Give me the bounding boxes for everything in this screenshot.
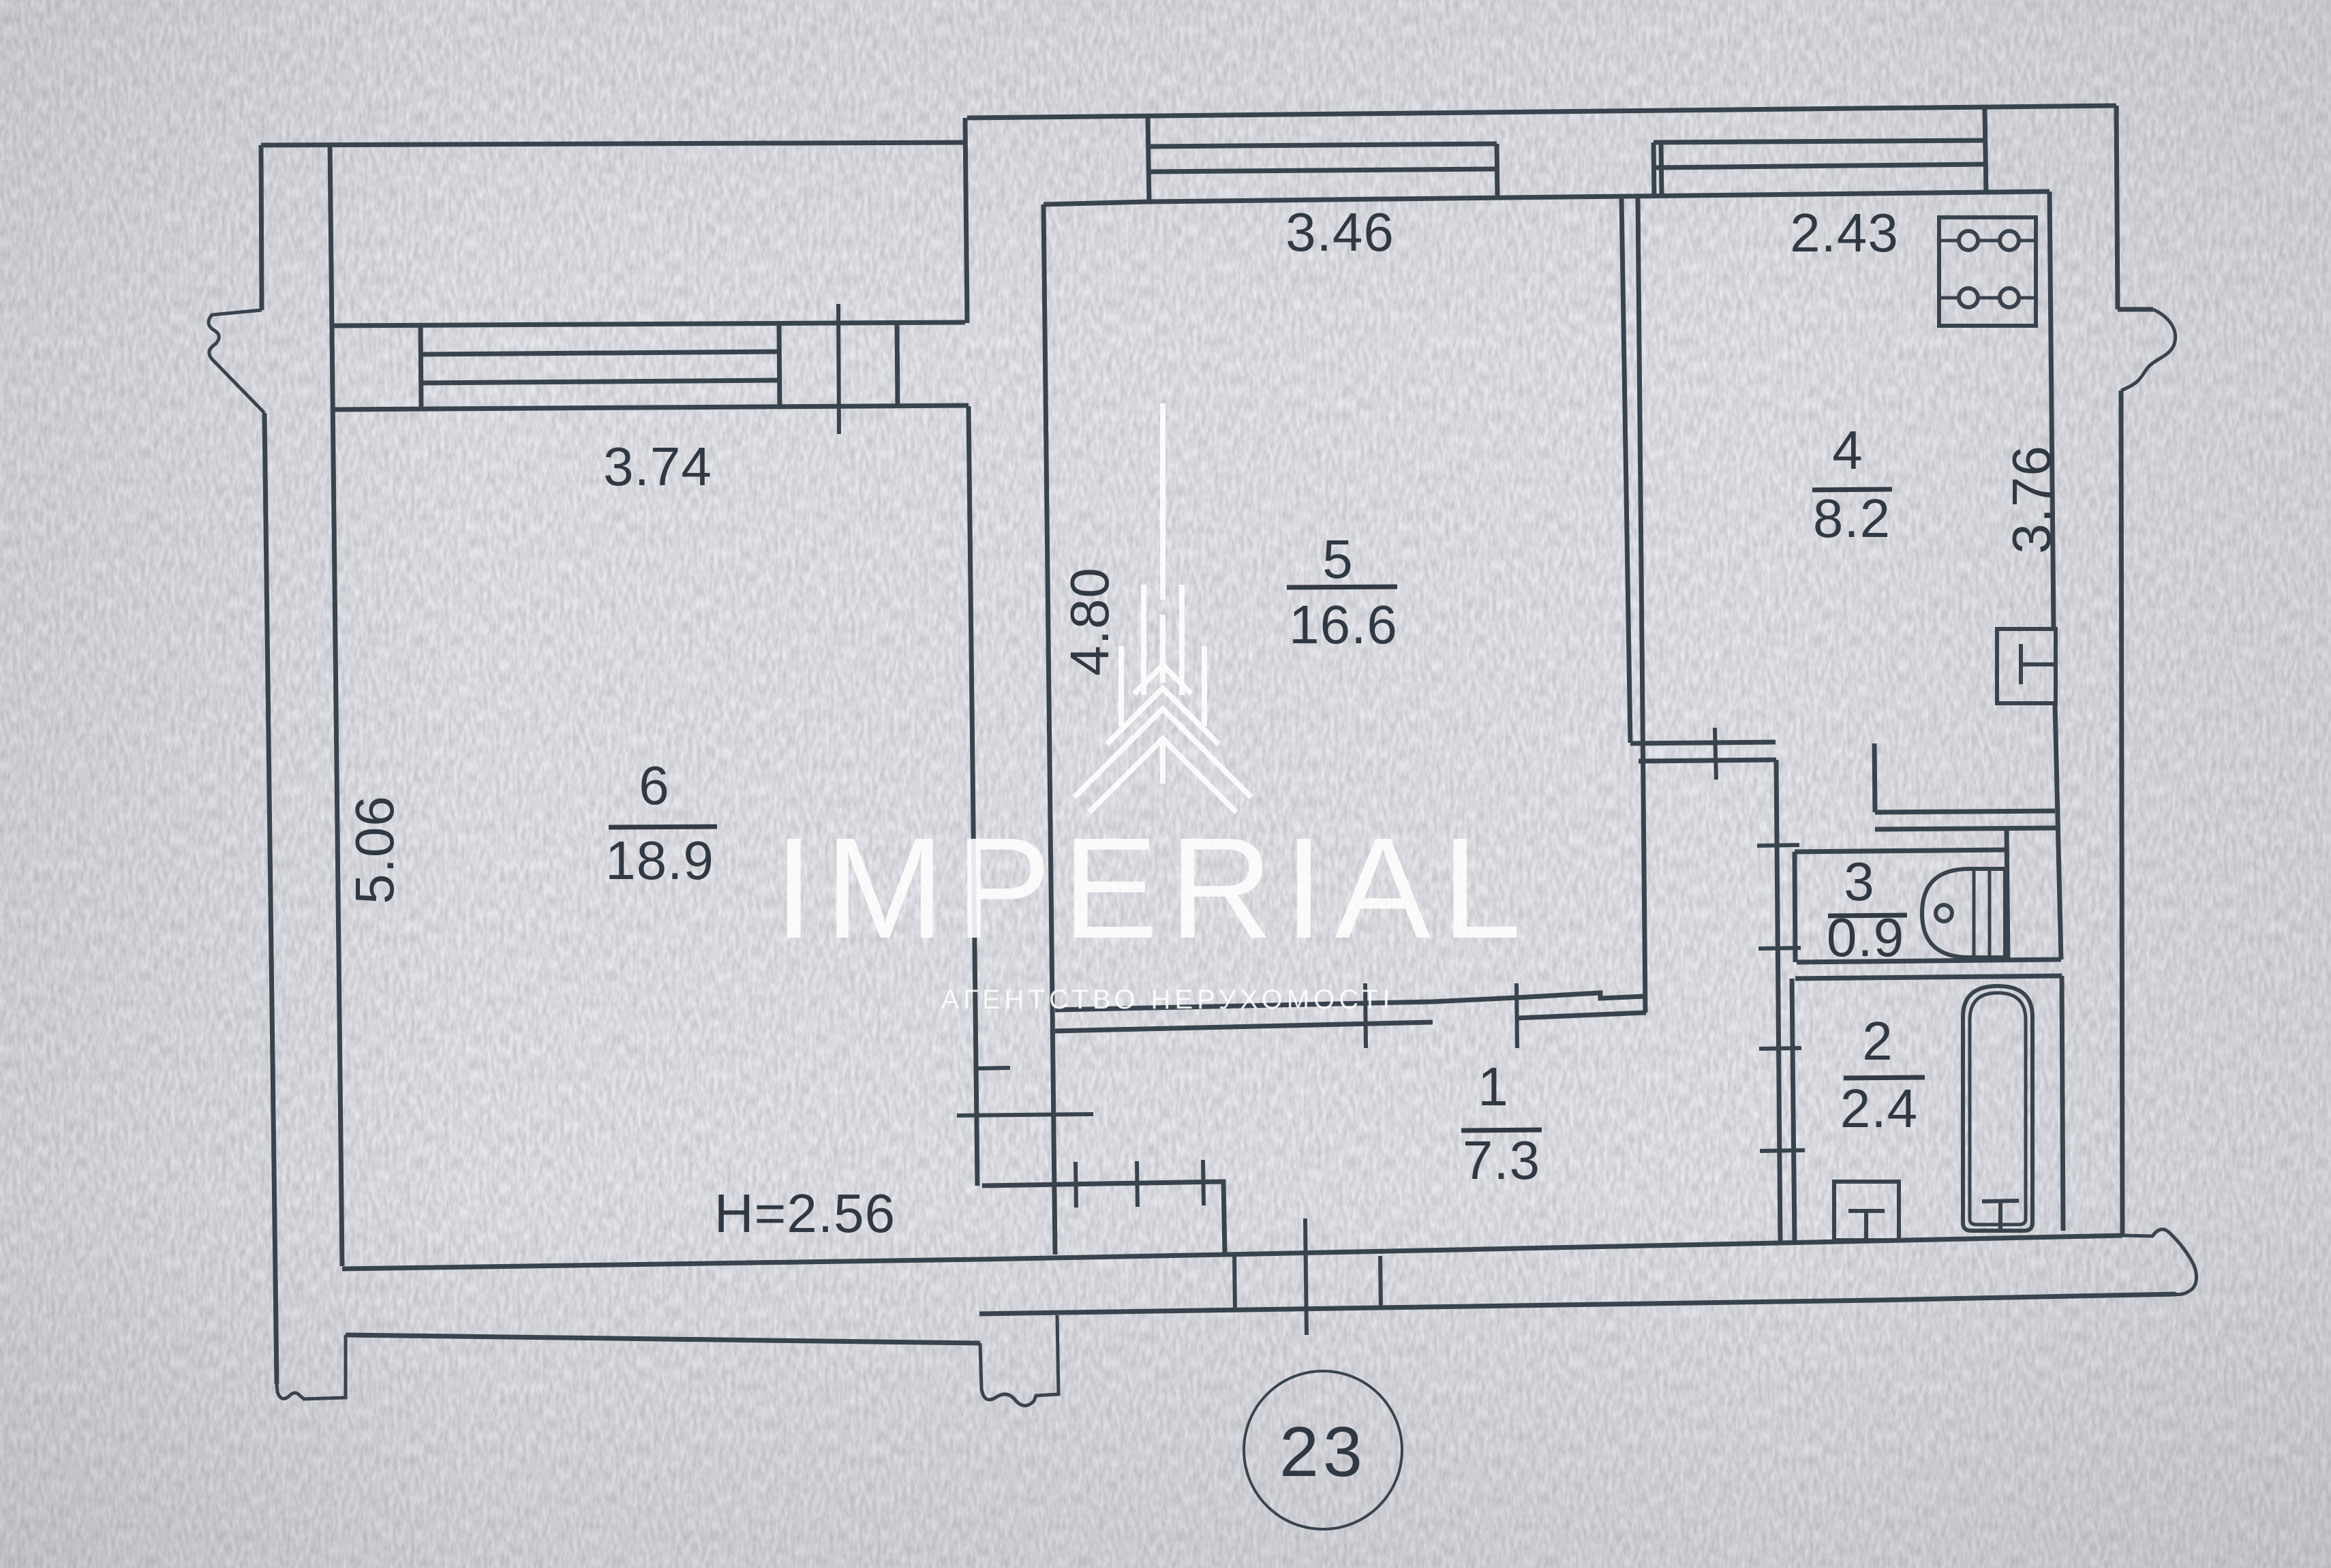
- svg-text:АГЕНТСТВО НЕРУХОМОСТІ: АГЕНТСТВО НЕРУХОМОСТІ: [941, 985, 1395, 1015]
- svg-text:5.06: 5.06: [344, 795, 405, 904]
- svg-text:16.6: 16.6: [1289, 594, 1398, 655]
- svg-text:23: 23: [1279, 1413, 1367, 1492]
- svg-text:IMPERIAL: IMPERIAL: [774, 808, 1533, 968]
- svg-text:2.43: 2.43: [1790, 202, 1899, 263]
- svg-text:H=2.56: H=2.56: [714, 1183, 896, 1244]
- svg-text:7.3: 7.3: [1463, 1130, 1540, 1190]
- svg-text:3.74: 3.74: [603, 436, 712, 497]
- svg-text:8.2: 8.2: [1813, 488, 1891, 549]
- svg-text:0.9: 0.9: [1827, 907, 1904, 968]
- svg-text:3.46: 3.46: [1285, 202, 1395, 262]
- svg-text:2: 2: [1862, 1011, 1893, 1071]
- svg-text:4: 4: [1832, 420, 1863, 480]
- svg-text:5: 5: [1322, 529, 1354, 589]
- svg-text:2.4: 2.4: [1840, 1078, 1918, 1139]
- svg-text:18.9: 18.9: [605, 830, 714, 891]
- svg-text:4.80: 4.80: [1059, 567, 1120, 676]
- svg-text:6: 6: [639, 755, 670, 816]
- svg-text:1: 1: [1478, 1056, 1509, 1117]
- svg-text:3.76: 3.76: [2001, 445, 2062, 554]
- svg-text:3: 3: [1844, 851, 1875, 912]
